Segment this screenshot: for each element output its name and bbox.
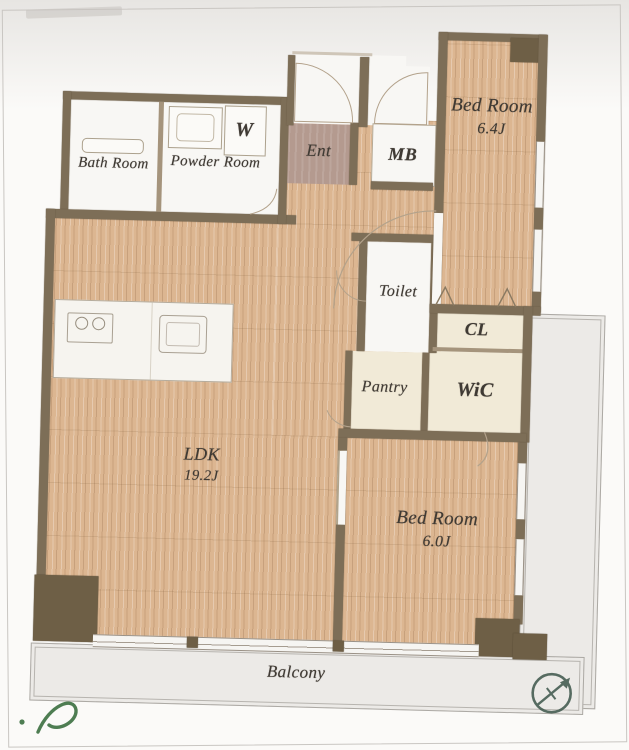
powder-room-label: Powder Room (165, 152, 265, 173)
bedroom-1-label: Bed Room 6.4J (438, 93, 545, 140)
toilet-label: Toilet (366, 281, 431, 303)
sink-icon (158, 315, 207, 354)
sliding-door-opening (336, 450, 347, 524)
entrance-label: Ent (288, 139, 351, 162)
floor-bedroom-1 (436, 36, 545, 311)
kitchen-counter (53, 299, 234, 383)
walk-in-closet-label: WiC (427, 377, 523, 404)
floor-plan: Balcony (25, 11, 615, 734)
closet-label: CL (429, 317, 525, 342)
wall-segment (349, 123, 359, 185)
wall-segment (358, 57, 369, 127)
pillar (513, 633, 548, 660)
washbasin-icon (168, 106, 223, 149)
wall-stub (187, 637, 198, 648)
signature-mark (8, 688, 103, 746)
pillar (33, 575, 99, 643)
mb-door-area (374, 65, 430, 126)
wall-stub (333, 640, 344, 651)
bathtub-icon (82, 138, 144, 155)
balcony-label: Balcony (236, 660, 357, 684)
stove-icon (67, 312, 114, 343)
ldk-label: LDK 19.2J (141, 441, 262, 486)
meter-box-label: MB (371, 123, 435, 185)
washer-label: W (224, 105, 265, 154)
bedroom-2-label: Bed Room 6.0J (355, 505, 518, 553)
pantry-label: Pantry (341, 377, 427, 399)
window-segment (534, 142, 545, 208)
compass-icon (525, 668, 578, 719)
window-segment (532, 230, 543, 292)
bath-room-label: Bath Room (63, 153, 163, 174)
scanned-floorplan-page: { "plan": { "type": "apartment-floor-pla… (0, 0, 629, 750)
